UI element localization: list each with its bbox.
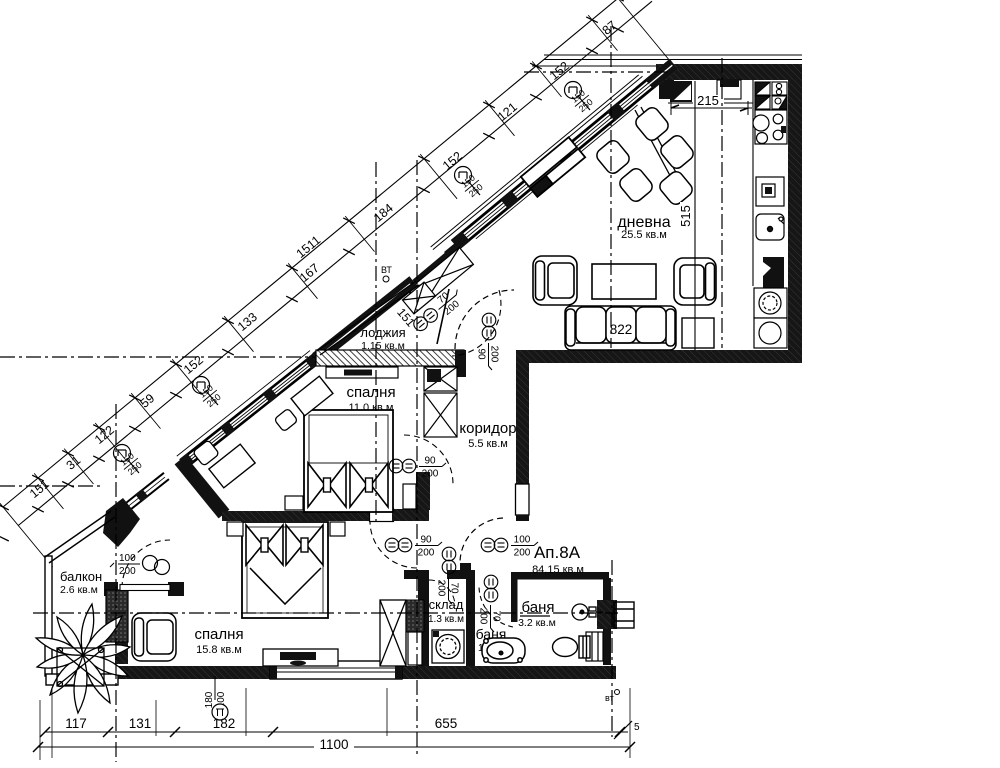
- svg-text:200: 200: [418, 548, 435, 559]
- svg-text:200: 200: [514, 548, 531, 559]
- svg-text:5.5 кв.м: 5.5 кв.м: [468, 438, 508, 450]
- svg-text:200: 200: [422, 469, 439, 480]
- svg-text:84.15 кв.м: 84.15 кв.м: [532, 564, 584, 576]
- svg-text:655: 655: [435, 716, 458, 731]
- svg-text:1.3 кв.м: 1.3 кв.м: [428, 614, 464, 625]
- svg-text:70: 70: [449, 582, 460, 594]
- svg-text:спалня: спалня: [346, 384, 395, 401]
- svg-text:15.8 кв.м: 15.8 кв.м: [196, 644, 242, 656]
- svg-text:3.2 кв.м: 3.2 кв.м: [518, 617, 556, 629]
- svg-text:100: 100: [514, 535, 531, 546]
- svg-text:200: 200: [436, 580, 447, 597]
- svg-text:балкон: балкон: [60, 569, 102, 584]
- svg-text:1.15 кв.м: 1.15 кв.м: [361, 340, 405, 352]
- svg-text:90: 90: [476, 348, 487, 360]
- svg-text:117: 117: [65, 716, 87, 731]
- svg-text:200: 200: [119, 566, 136, 577]
- svg-text:180: 180: [204, 691, 215, 708]
- svg-text:склад: склад: [429, 597, 464, 612]
- svg-text:25.5 кв.м: 25.5 кв.м: [621, 229, 667, 241]
- svg-text:ВТ: ВТ: [381, 265, 392, 275]
- svg-text:515: 515: [678, 205, 693, 227]
- svg-text:100: 100: [119, 553, 136, 564]
- svg-text:2.6 кв.м: 2.6 кв.м: [60, 584, 98, 596]
- svg-text:822: 822: [610, 322, 633, 337]
- svg-text:1100: 1100: [319, 737, 348, 752]
- svg-text:200: 200: [489, 346, 500, 363]
- svg-text:70: 70: [491, 610, 502, 622]
- svg-text:90: 90: [424, 456, 436, 467]
- svg-text:131: 131: [129, 716, 152, 731]
- svg-text:спалня: спалня: [194, 626, 243, 643]
- svg-text:215: 215: [697, 93, 719, 108]
- svg-text:182: 182: [213, 716, 236, 731]
- svg-text:Ап.8А: Ап.8А: [534, 543, 581, 562]
- svg-text:коридор: коридор: [459, 420, 516, 437]
- svg-text:5: 5: [634, 722, 640, 733]
- svg-text:90: 90: [420, 535, 432, 546]
- svg-text:200: 200: [478, 608, 489, 625]
- svg-text:лоджия: лоджия: [360, 325, 405, 340]
